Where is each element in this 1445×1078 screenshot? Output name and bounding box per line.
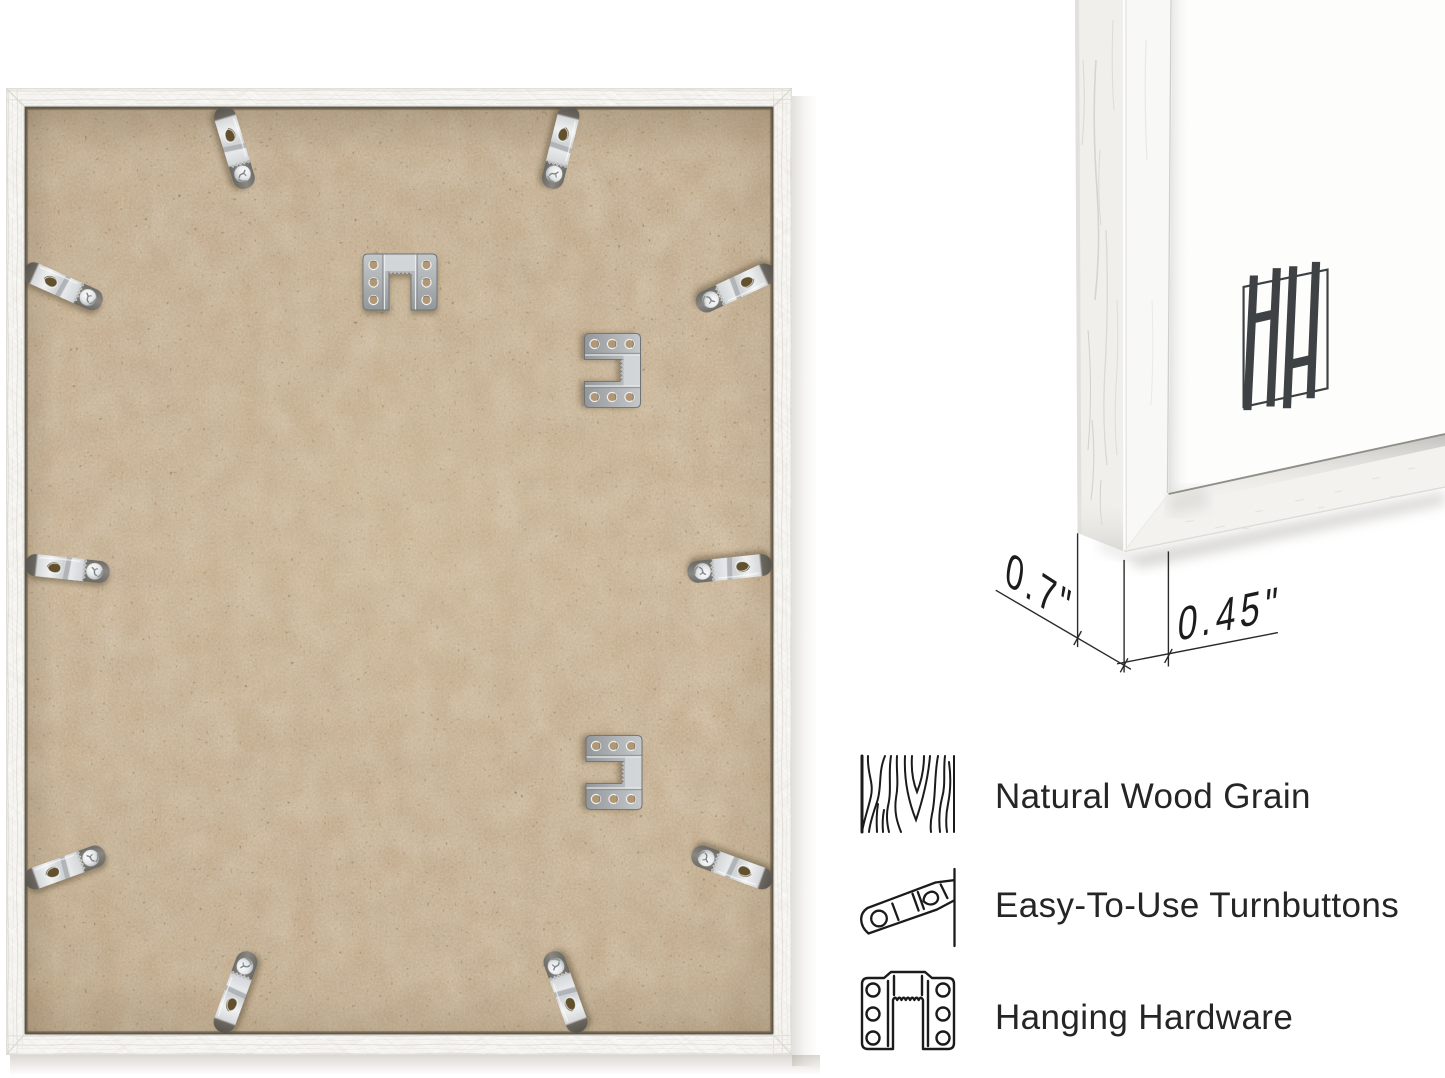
svg-text:0.7": 0.7" — [1002, 541, 1078, 636]
svg-text:0.45": 0.45" — [1176, 577, 1284, 652]
